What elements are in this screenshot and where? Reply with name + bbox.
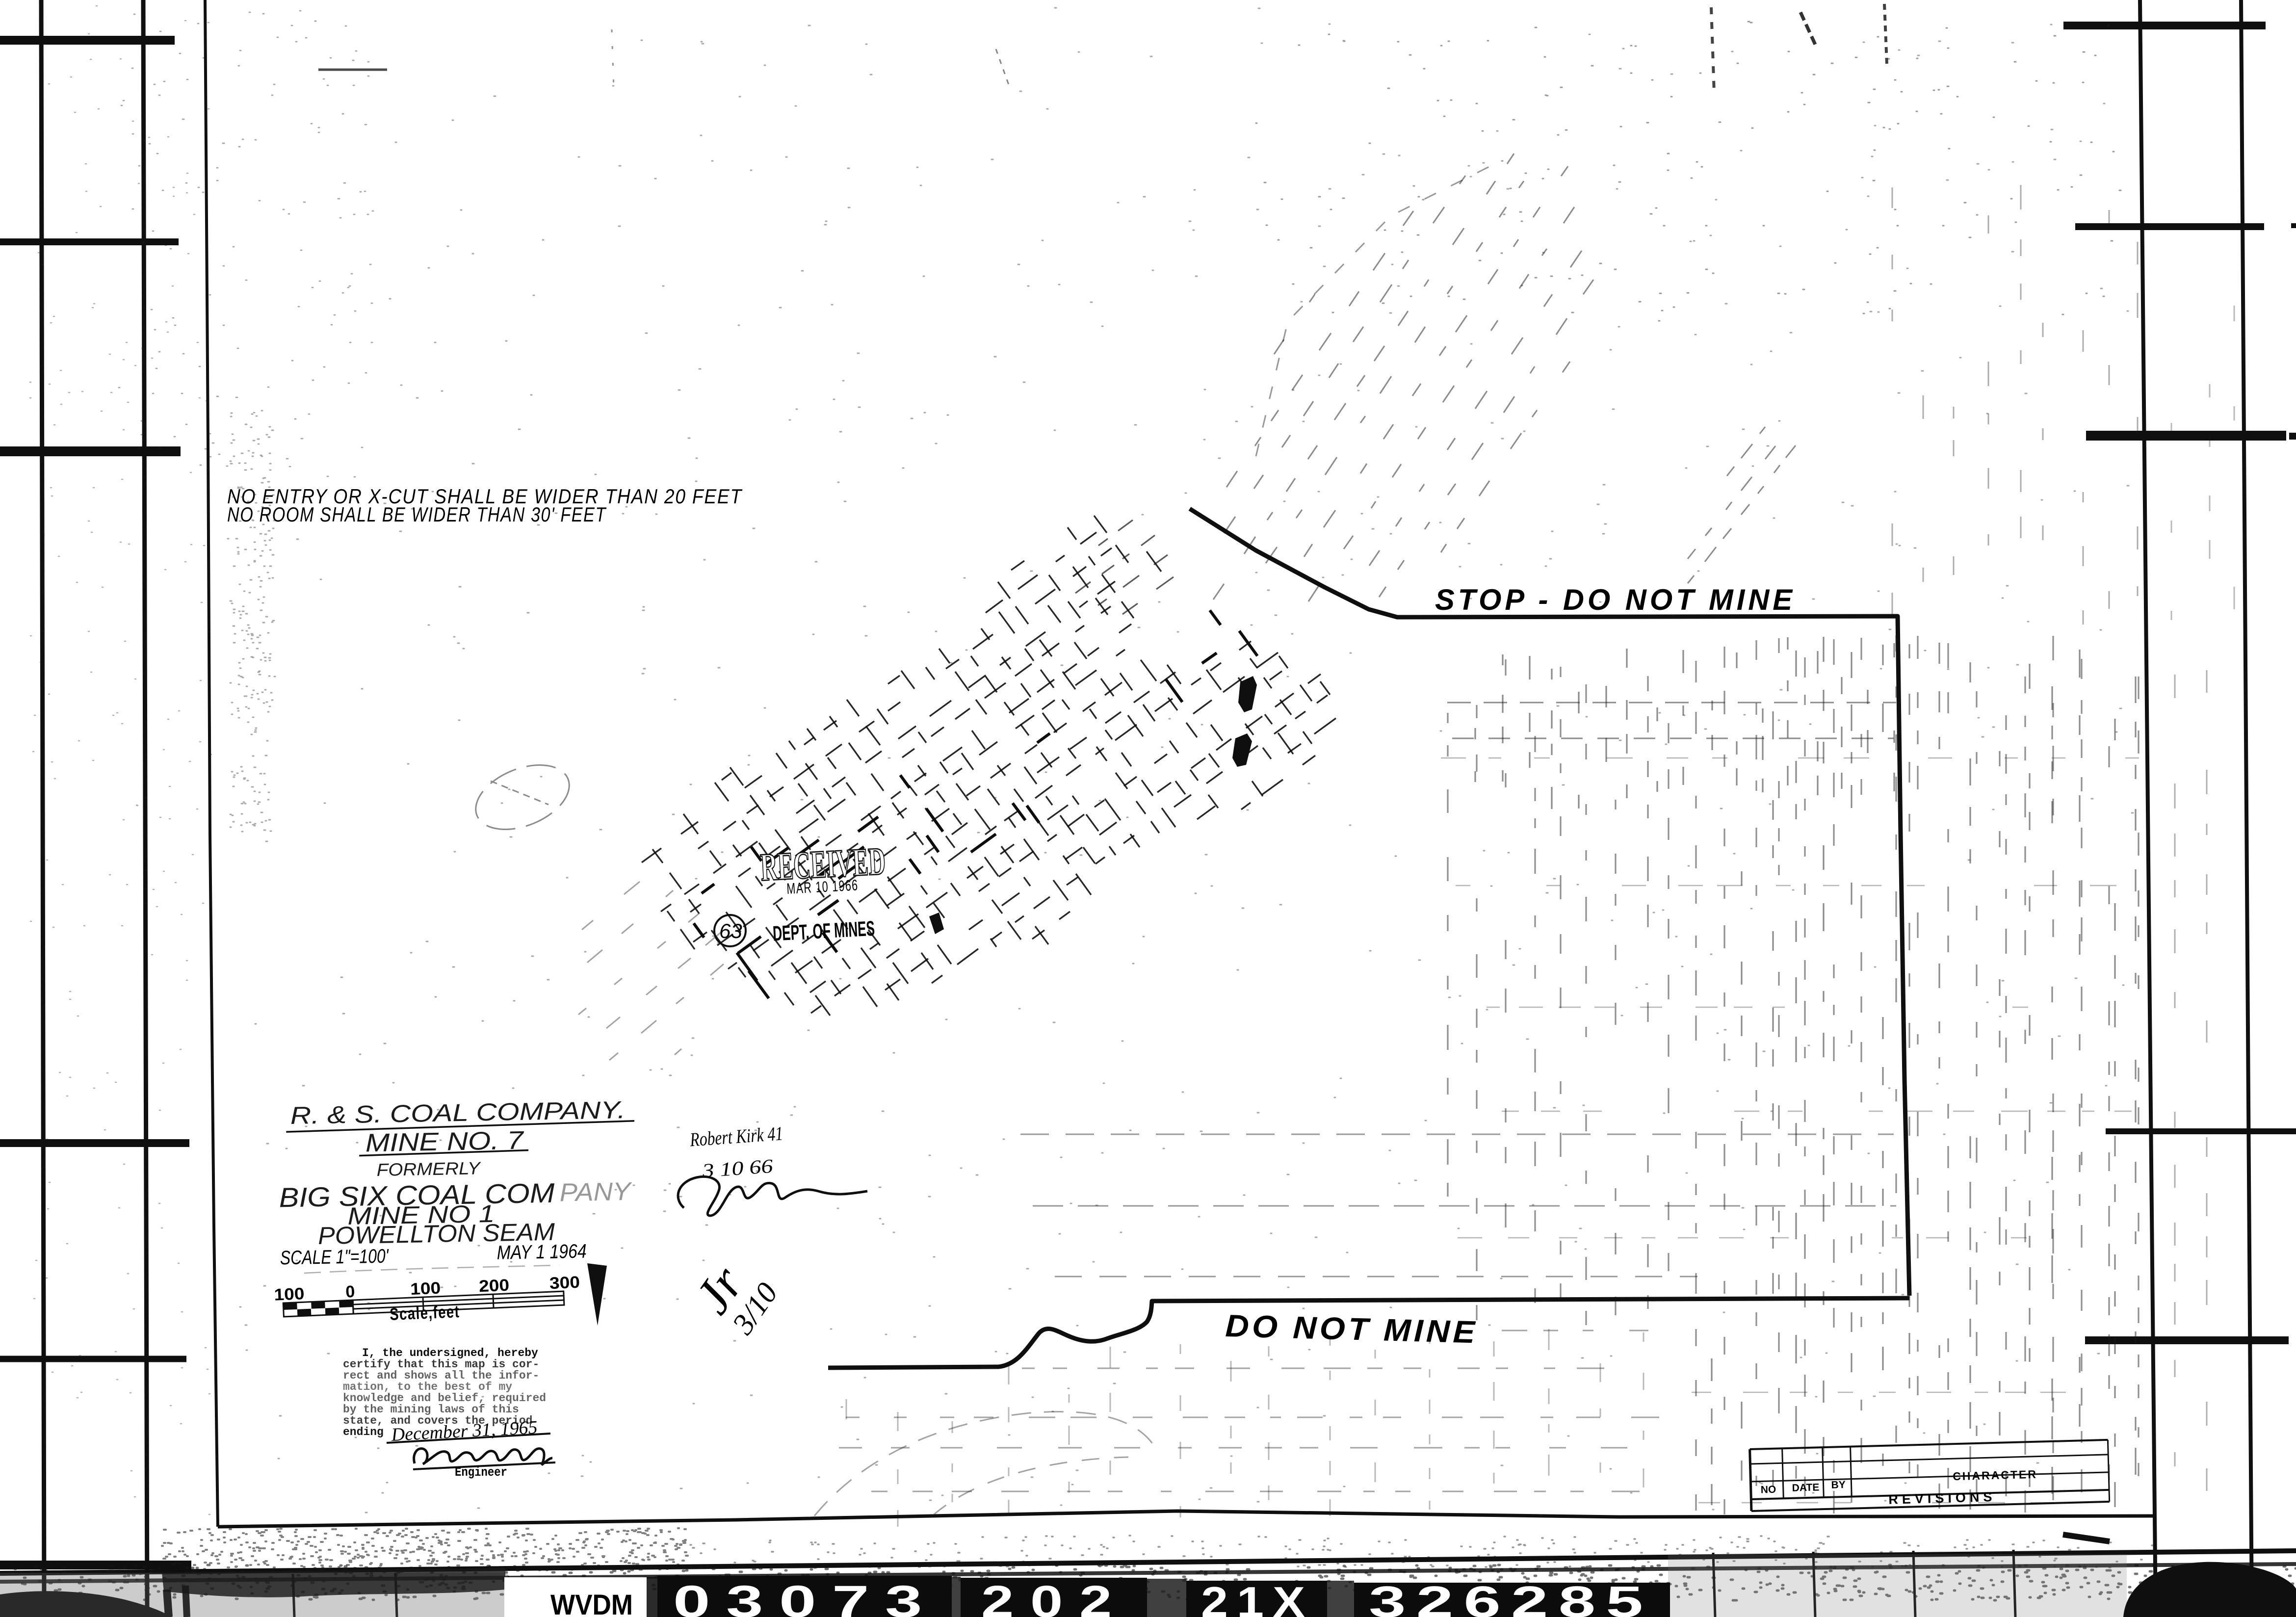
- svg-text:0: 0: [345, 1282, 355, 1302]
- svg-text:100: 100: [410, 1279, 442, 1299]
- svg-text:ending: ending: [343, 1426, 384, 1438]
- svg-text:326285: 326285: [1369, 1578, 1653, 1617]
- svg-text:100: 100: [274, 1284, 305, 1304]
- svg-text:Engineer: Engineer: [455, 1465, 507, 1480]
- svg-text:BY: BY: [1831, 1479, 1846, 1491]
- svg-text:PANY: PANY: [559, 1177, 632, 1207]
- svg-text:MAY 1 1964: MAY 1 1964: [496, 1241, 587, 1264]
- svg-text:NO: NO: [1761, 1484, 1776, 1496]
- svg-text:CHARACTER: CHARACTER: [1953, 1468, 2037, 1483]
- svg-text:21X: 21X: [1201, 1578, 1314, 1617]
- svg-text:202: 202: [981, 1577, 1128, 1617]
- svg-text:300: 300: [549, 1273, 580, 1293]
- svg-text:Scale,feet: Scale,feet: [390, 1302, 461, 1324]
- svg-text:STOP - DO NOT MINE: STOP - DO NOT MINE: [1435, 583, 1796, 616]
- svg-text:WVDM: WVDM: [550, 1589, 633, 1617]
- svg-text:63: 63: [719, 919, 742, 942]
- svg-text:FORMERLY: FORMERLY: [376, 1158, 482, 1180]
- svg-text:03073: 03073: [673, 1577, 938, 1617]
- svg-text:REVISIONS: REVISIONS: [1888, 1489, 1996, 1507]
- svg-text:DATE: DATE: [1792, 1482, 1819, 1493]
- svg-text:NO ROOM SHALL BE WIDER THAN 30: NO ROOM SHALL BE WIDER THAN 30' FEET: [227, 503, 607, 526]
- svg-text:200: 200: [478, 1276, 510, 1296]
- svg-text:DO NOT MINE: DO NOT MINE: [1225, 1308, 1479, 1350]
- svg-text:SCALE 1"=100': SCALE 1"=100': [280, 1246, 389, 1269]
- svg-text:R. & S. COAL COMPANY.: R. & S. COAL COMPANY.: [290, 1096, 626, 1129]
